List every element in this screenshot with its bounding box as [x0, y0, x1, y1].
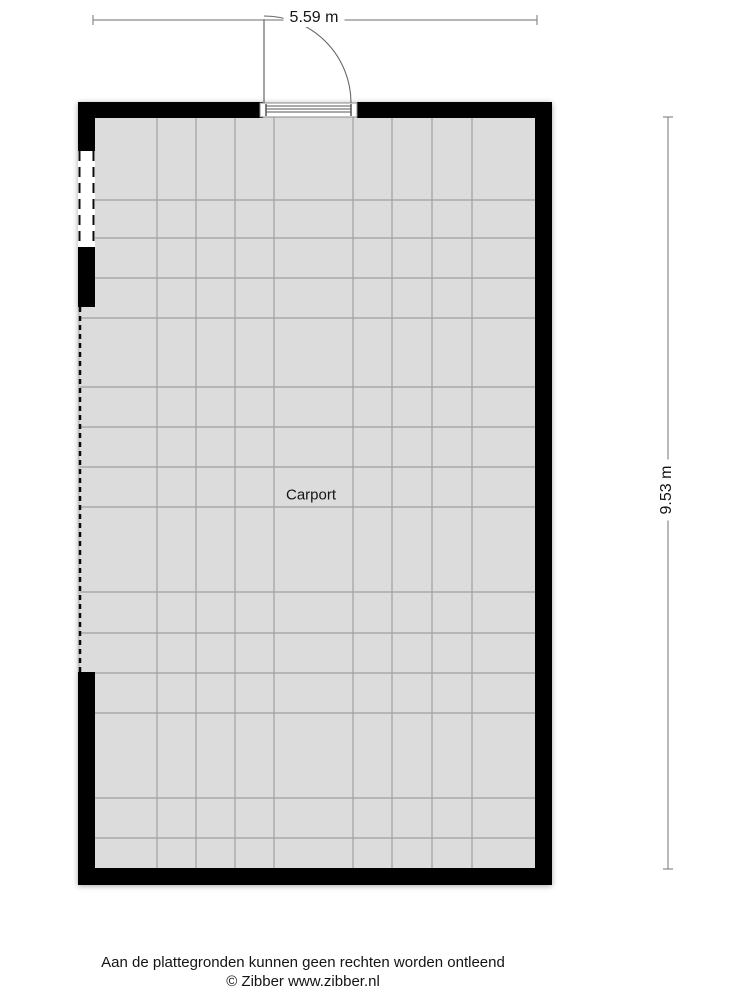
door-threshold: [260, 103, 357, 117]
wall-left-upper: [78, 102, 95, 151]
height-dimension-label: 9.53 m: [658, 460, 676, 521]
floorplan-drawing: [0, 0, 750, 1000]
door-swing-arc: [264, 16, 351, 103]
wall-bottom: [78, 868, 552, 885]
wall-left-lower: [78, 672, 95, 885]
wall-top-left: [78, 102, 263, 118]
footer-disclaimer: Aan de plattegronden kunnen geen rechten…: [101, 953, 505, 972]
width-dimension-label: 5.59 m: [284, 9, 345, 27]
wall-right: [535, 102, 552, 885]
door: [264, 16, 351, 103]
room-label: Carport: [286, 487, 336, 504]
footer: Aan de plattegronden kunnen geen rechten…: [101, 953, 505, 991]
wall-top-right: [357, 102, 552, 118]
wall-left-middle: [78, 247, 95, 307]
window: [78, 151, 95, 247]
footer-copyright: © Zibber www.zibber.nl: [101, 972, 505, 991]
floorplan-page: 5.59 m 9.53 m Carport Aan de plattegrond…: [0, 0, 750, 1000]
